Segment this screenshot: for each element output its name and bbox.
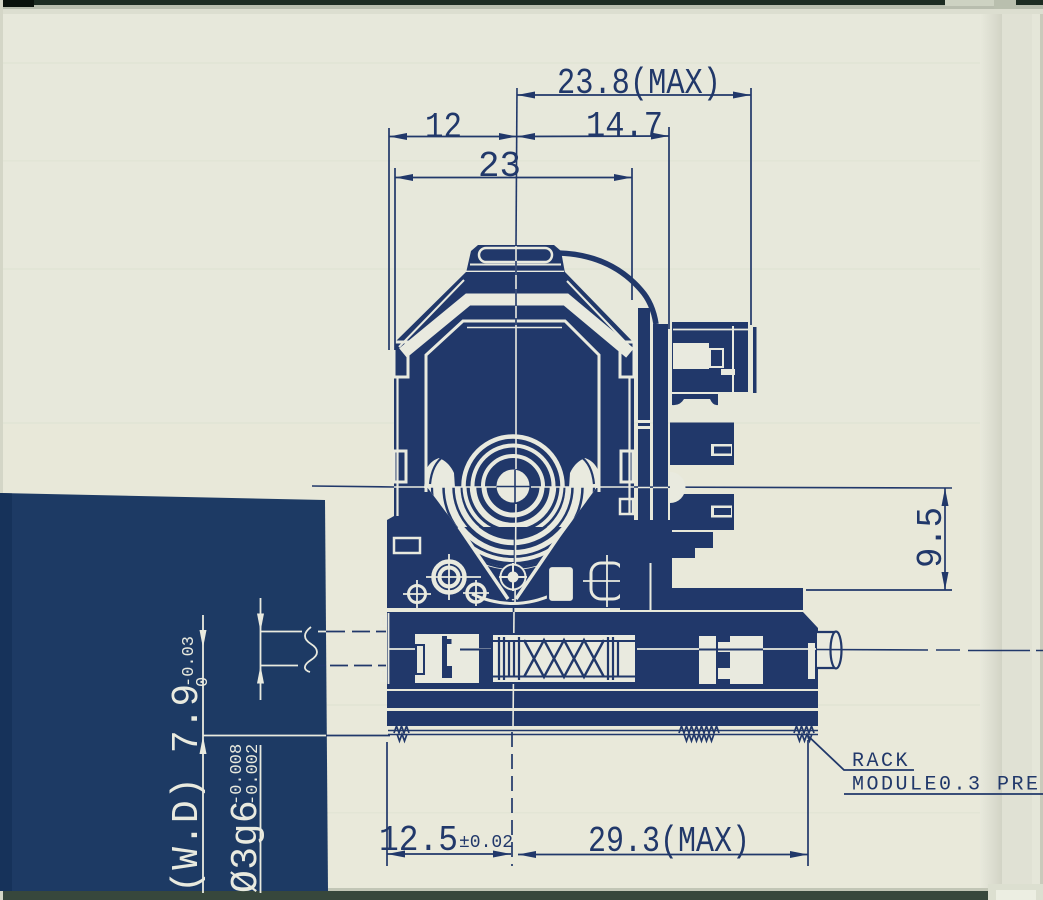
svg-text:14.7: 14.7 — [586, 106, 663, 147]
svg-text:MODULE0.3 PRE: MODULE0.3 PRE — [852, 774, 1041, 797]
svg-text:23: 23 — [478, 146, 521, 187]
svg-text:(W.D) 7.9: (W.D) 7.9 — [166, 683, 209, 893]
svg-text:12: 12 — [425, 107, 462, 148]
svg-text:RACK: RACK — [852, 750, 910, 773]
svg-text:9.5: 9.5 — [911, 507, 952, 568]
svg-text:12.5: 12.5 — [379, 820, 458, 861]
svg-text:Ø3g6: Ø3g6 — [225, 800, 268, 893]
svg-text:-0.008: -0.008 — [228, 744, 247, 805]
svg-text:-0.03: -0.03 — [180, 636, 199, 687]
svg-text:23.8(MAX): 23.8(MAX) — [557, 63, 721, 104]
svg-text:±0.02: ±0.02 — [459, 833, 513, 853]
svg-text:29.3(MAX): 29.3(MAX) — [588, 821, 750, 862]
